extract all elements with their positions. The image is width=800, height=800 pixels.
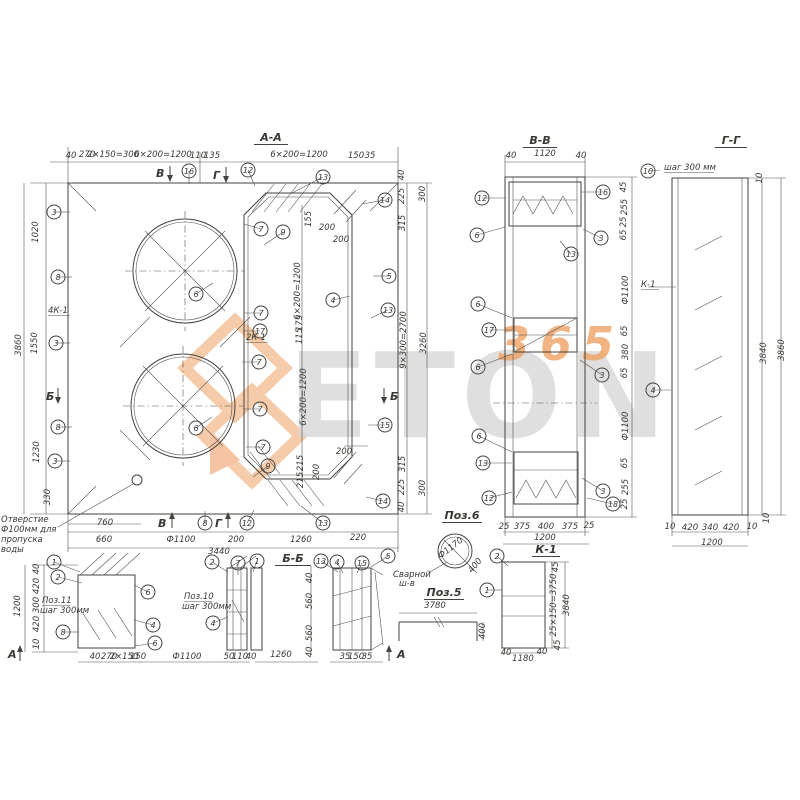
dim-label: 40: [397, 502, 407, 513]
position-number: 3: [52, 457, 57, 466]
dim-label: 330: [43, 489, 53, 505]
view-title: Г-Г: [722, 134, 742, 147]
annotation-label: Поз.11: [42, 596, 72, 606]
dim-label: Ф1100: [621, 276, 631, 305]
position-number: 2: [494, 552, 499, 561]
position-number: 3: [53, 339, 58, 348]
dim-label: 3840: [562, 594, 572, 616]
dim-label: 375: [562, 522, 578, 532]
dim-label: 10: [32, 639, 42, 650]
dim-label: 40: [576, 151, 587, 161]
dim-label: 300: [418, 480, 428, 496]
dim-label: Ф1100: [173, 652, 202, 662]
dim-label: Ф1170: [436, 536, 465, 562]
annotation-label: шаг 300мм: [40, 606, 90, 616]
view-title: Поз.5: [427, 586, 462, 599]
position-number: 6: [145, 588, 150, 597]
dim-label: 215: [296, 472, 306, 488]
position-number: 17: [255, 327, 266, 336]
position-number: 12: [484, 494, 494, 503]
position-number: 16: [184, 167, 194, 176]
dim-label: Ф1100: [621, 412, 631, 441]
drawing-svg: ETON 365: [0, 0, 800, 800]
position-number: 15: [380, 421, 390, 430]
dim-label: 3840: [759, 342, 769, 364]
position-number: 1: [484, 586, 489, 595]
view-title: Поз.6: [445, 509, 480, 522]
position-number: 6: [193, 290, 198, 299]
position-number: 7: [258, 309, 264, 318]
dim-label: 10: [747, 522, 758, 532]
dim-label: 315: [398, 456, 408, 472]
dim-label: 65: [620, 326, 630, 337]
dim-label: 1260: [290, 535, 312, 545]
position-number: 8: [55, 273, 60, 282]
dim-label: 225: [397, 188, 407, 204]
dim-label: 45: [553, 640, 563, 651]
dim-label: 40: [305, 647, 315, 658]
dim-label: 3860: [777, 339, 787, 361]
drain-hole: [132, 475, 142, 485]
section-letter: Г: [215, 517, 223, 530]
dim-label: 1020: [31, 221, 41, 243]
position-number: 6: [152, 639, 157, 648]
dim-label: 200: [312, 464, 322, 480]
dim-label: 150: [348, 151, 364, 161]
dim-label: 1180: [512, 654, 534, 664]
dim-label: 150: [130, 652, 146, 662]
position-number: 6: [193, 424, 198, 433]
position-number: 12: [243, 166, 253, 175]
dim-label: 760: [97, 518, 113, 528]
annotation-label: Отверстие: [1, 515, 49, 525]
dim-label: 115: [295, 328, 305, 344]
position-number: 12: [477, 194, 487, 203]
dim-label: 215: [296, 455, 306, 471]
position-number: 14: [378, 497, 388, 506]
blueprint-canvas: ETON 365: [0, 0, 800, 800]
dim-label: 40: [90, 652, 101, 662]
dim-label: 200: [319, 223, 335, 233]
pos5-bar: [399, 617, 483, 641]
dim-label: 1550: [30, 332, 40, 354]
dim-label: 65: [620, 368, 630, 379]
position-number: 17: [484, 326, 495, 335]
position-number: 4: [330, 296, 335, 305]
position-number: 18: [608, 500, 618, 509]
dim-label: 40: [305, 573, 315, 584]
position-number: 9: [280, 228, 285, 237]
annotation-label: Ф100мм для: [1, 525, 57, 535]
section-letter: Б: [46, 390, 54, 403]
dim-label: 25: [584, 521, 595, 531]
position-number: 1: [51, 558, 56, 567]
position-number: 16: [598, 188, 608, 197]
position-number: 13: [318, 173, 328, 182]
dim-label: 1260: [270, 650, 292, 660]
position-number: 15: [357, 559, 367, 568]
annotation-label: 4К-1: [48, 306, 68, 316]
position-number: 13: [316, 557, 326, 566]
position-number: 13: [383, 306, 393, 315]
dim-label: 1200: [701, 538, 723, 548]
annotation-label: шаг 300 мм: [664, 163, 716, 173]
watermark-logo: [185, 320, 300, 482]
dim-label: 1200: [534, 533, 556, 543]
dim-label: 300: [418, 186, 428, 202]
dim-label: 35: [362, 652, 373, 662]
dim-label: 25: [620, 499, 630, 510]
position-number: 13: [318, 519, 328, 528]
dim-label: 1200: [13, 595, 23, 617]
dim-label: 200: [333, 235, 349, 245]
dim-label: 6×200=1200: [299, 368, 309, 426]
dim-label: 35: [365, 151, 376, 161]
position-number: 7: [260, 443, 266, 452]
dim-label: 45: [551, 562, 561, 573]
position-number: 4: [650, 386, 655, 395]
dim-label: 560: [305, 625, 315, 641]
dim-label: 45: [619, 182, 629, 193]
dim-label: 40: [506, 151, 517, 161]
dim-label: 1230: [32, 441, 42, 463]
position-number: 7: [258, 225, 264, 234]
position-number: 13: [566, 250, 576, 259]
dim-label: 420: [32, 616, 42, 632]
dim-label: 135: [204, 151, 220, 161]
dim-label: 200: [336, 447, 352, 457]
dim-label: 400: [466, 556, 484, 575]
dim-label: 10: [665, 522, 676, 532]
position-number: 8: [55, 423, 60, 432]
position-number: 2: [209, 558, 214, 567]
position-number: 14: [380, 196, 390, 205]
position-number: 8: [60, 628, 65, 637]
dim-label: 380: [621, 344, 631, 360]
dim-label: Ф1100: [167, 535, 196, 545]
dim-label: 3860: [14, 334, 24, 356]
dim-label: 420: [723, 523, 739, 533]
annotation-label: пропуска: [1, 535, 43, 545]
dim-label: 65: [619, 230, 629, 241]
annotation-label: шаг 300мм: [182, 602, 232, 612]
position-number: 6: [475, 363, 480, 372]
dim-label: 220: [350, 533, 366, 543]
dim-label: 155: [304, 211, 314, 227]
position-number: 5: [385, 552, 390, 561]
position-number: 3: [600, 487, 605, 496]
dim-label: 65: [620, 458, 630, 469]
dim-label: 10: [762, 513, 772, 524]
dim-label: 225: [397, 479, 407, 495]
annotation-label: Поз.10: [184, 592, 214, 602]
dim-label: 10: [755, 173, 765, 184]
view-title: В-В: [529, 134, 550, 147]
dim-label: 25: [499, 522, 510, 532]
position-number: 7: [256, 358, 262, 367]
dim-label: 420: [682, 523, 698, 533]
section-letter: А: [396, 648, 406, 661]
position-number: 13: [478, 459, 488, 468]
view-title: Б-Б: [282, 552, 303, 565]
annotation-label: воды: [1, 545, 24, 555]
position-number: 4: [150, 621, 155, 630]
position-number: 6: [475, 300, 480, 309]
position-number: 10: [643, 167, 653, 176]
dim-label: 1120: [534, 149, 556, 159]
dim-label: 420: [32, 578, 42, 594]
position-number: 1: [254, 557, 259, 566]
dim-label: 25×150=3750: [549, 574, 559, 637]
position-number: 5: [386, 272, 391, 281]
position-number: 4: [210, 619, 215, 628]
position-number: 2: [55, 573, 60, 582]
watermark-digits: 365: [498, 317, 624, 371]
round-opening-top: [125, 211, 245, 331]
section-letter: А: [7, 648, 17, 661]
dim-label: 3260: [419, 332, 429, 354]
position-number: 6: [474, 231, 479, 240]
annotation-label: К-1: [641, 280, 656, 290]
position-number: 4: [334, 558, 339, 567]
dim-label: 400: [538, 522, 554, 532]
dim-label: 9×300=2700: [399, 311, 409, 369]
position-number: 6: [476, 432, 481, 441]
dim-label: 40: [501, 648, 512, 658]
position-number: 3: [599, 371, 604, 380]
dim-label: 340: [702, 523, 718, 533]
dim-label: 200: [228, 535, 244, 545]
dim-label: 315: [398, 215, 408, 231]
section-letter: Б: [390, 390, 398, 403]
dim-label: 40: [32, 564, 42, 575]
section-letter: В: [158, 517, 166, 530]
position-number: 3: [598, 234, 603, 243]
dim-label: 660: [96, 535, 112, 545]
dim-label: 6×200=1200: [270, 150, 328, 160]
dim-label: 6×200=1200: [293, 262, 303, 320]
position-number: 3: [51, 208, 56, 217]
annotation-label: ш-в: [399, 579, 415, 589]
view-title: К-1: [535, 543, 556, 556]
position-number: 8: [202, 519, 207, 528]
dim-label: 2×150=300: [87, 150, 139, 160]
dim-label: 40: [66, 151, 77, 161]
section-letter: В: [156, 167, 164, 180]
dim-label: 40: [537, 647, 548, 657]
view-title: А-А: [259, 131, 282, 144]
position-number: 12: [242, 519, 252, 528]
dim-label: 400: [478, 623, 488, 639]
position-number: 9: [265, 462, 270, 471]
dim-label: 25: [619, 217, 629, 228]
dim-label: 3780: [424, 601, 446, 611]
dim-label: 255: [620, 199, 630, 215]
dim-label: 40: [397, 170, 407, 181]
dim-label: 560: [305, 593, 315, 609]
dim-label: 6×200=1200: [134, 150, 192, 160]
dim-label: 255: [621, 479, 631, 495]
section-letter: Г: [213, 169, 221, 182]
dim-label: 375: [514, 522, 530, 532]
dim-label: 40: [246, 652, 257, 662]
